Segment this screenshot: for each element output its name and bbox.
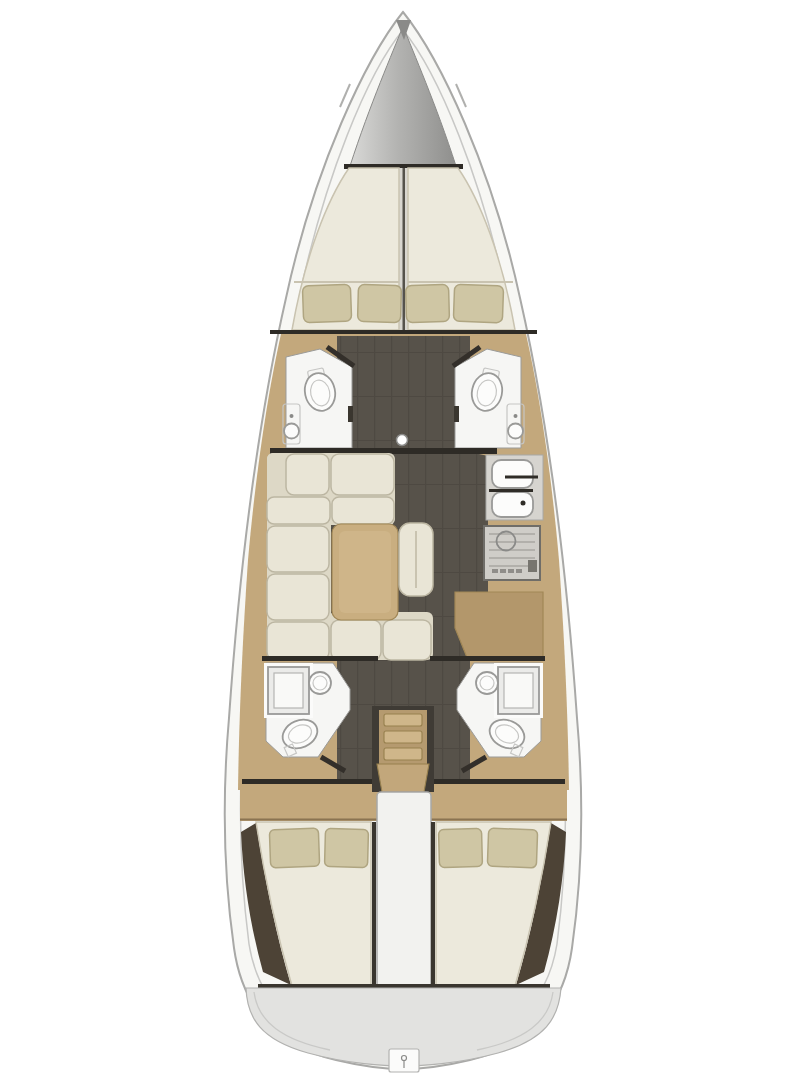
sofa-back-cushion <box>331 454 394 495</box>
salon-table <box>332 524 398 620</box>
aft-bulkhead-starboard <box>430 656 545 661</box>
toe-rail-mark-starboard <box>456 84 466 107</box>
stove-knob <box>508 569 514 573</box>
pillow <box>453 284 503 323</box>
stair-tread <box>384 714 422 726</box>
door-jamb <box>348 406 353 422</box>
stove-knob <box>516 569 522 573</box>
sofa-back-cushion <box>286 454 329 495</box>
salon-ottoman <box>399 523 433 596</box>
forward-head-port <box>283 347 354 448</box>
aft-bulkhead-port <box>262 656 378 661</box>
aft-cabin-starboard <box>431 822 566 986</box>
toe-rail-mark-port <box>340 84 350 107</box>
yacht-floorplan <box>0 0 810 1080</box>
companionway <box>372 706 434 792</box>
sink-faucet <box>290 414 294 418</box>
sofa-side-cushion <box>267 574 329 620</box>
shower-inner <box>274 673 303 708</box>
pillow <box>325 828 369 867</box>
sink-bowl <box>476 672 498 694</box>
swim-platform <box>246 988 561 1072</box>
sofa-side-cushion <box>267 622 329 660</box>
sofa-seat-cushion <box>267 497 330 524</box>
door-jamb <box>454 406 459 422</box>
galley-sink-basin <box>492 492 533 517</box>
galley-sink-basin <box>492 460 533 488</box>
pillow <box>358 284 402 322</box>
forward-head-starboard <box>453 347 524 448</box>
engine-compartment <box>377 792 431 988</box>
cabin-bulkhead <box>270 330 537 334</box>
pillow <box>487 828 537 868</box>
mast-step <box>397 435 408 446</box>
berth-gap-line <box>372 822 376 986</box>
stair-tread <box>384 731 422 743</box>
floorplan-canvas <box>0 0 810 1080</box>
sink-bowl <box>508 424 523 439</box>
stair-tread <box>384 748 422 760</box>
sink-bowl <box>309 672 331 694</box>
table-inner <box>339 531 391 613</box>
sofa-seat-cushion <box>332 497 394 524</box>
stove-knob <box>500 569 506 573</box>
stove-knob <box>492 569 498 573</box>
aft-cabin-port <box>241 822 376 986</box>
shower-inner <box>504 673 533 708</box>
pillow <box>406 284 450 322</box>
pillow <box>439 828 483 867</box>
sink-faucet <box>514 414 518 418</box>
stove-control <box>528 560 537 572</box>
sink-bowl <box>284 424 299 439</box>
galley-counter-aft <box>455 592 543 660</box>
sofa-side-cushion <box>267 526 329 572</box>
sofa-bottom-cushion <box>383 620 431 660</box>
pillow <box>269 828 319 868</box>
berth-center-gap-line <box>403 168 406 330</box>
faucet-handle <box>521 501 526 506</box>
ladder-hatch <box>389 1049 419 1072</box>
berth-gap-line <box>431 822 435 986</box>
stair-landing <box>377 764 429 792</box>
sofa-bottom-cushion <box>331 620 381 660</box>
pillow <box>302 284 351 323</box>
